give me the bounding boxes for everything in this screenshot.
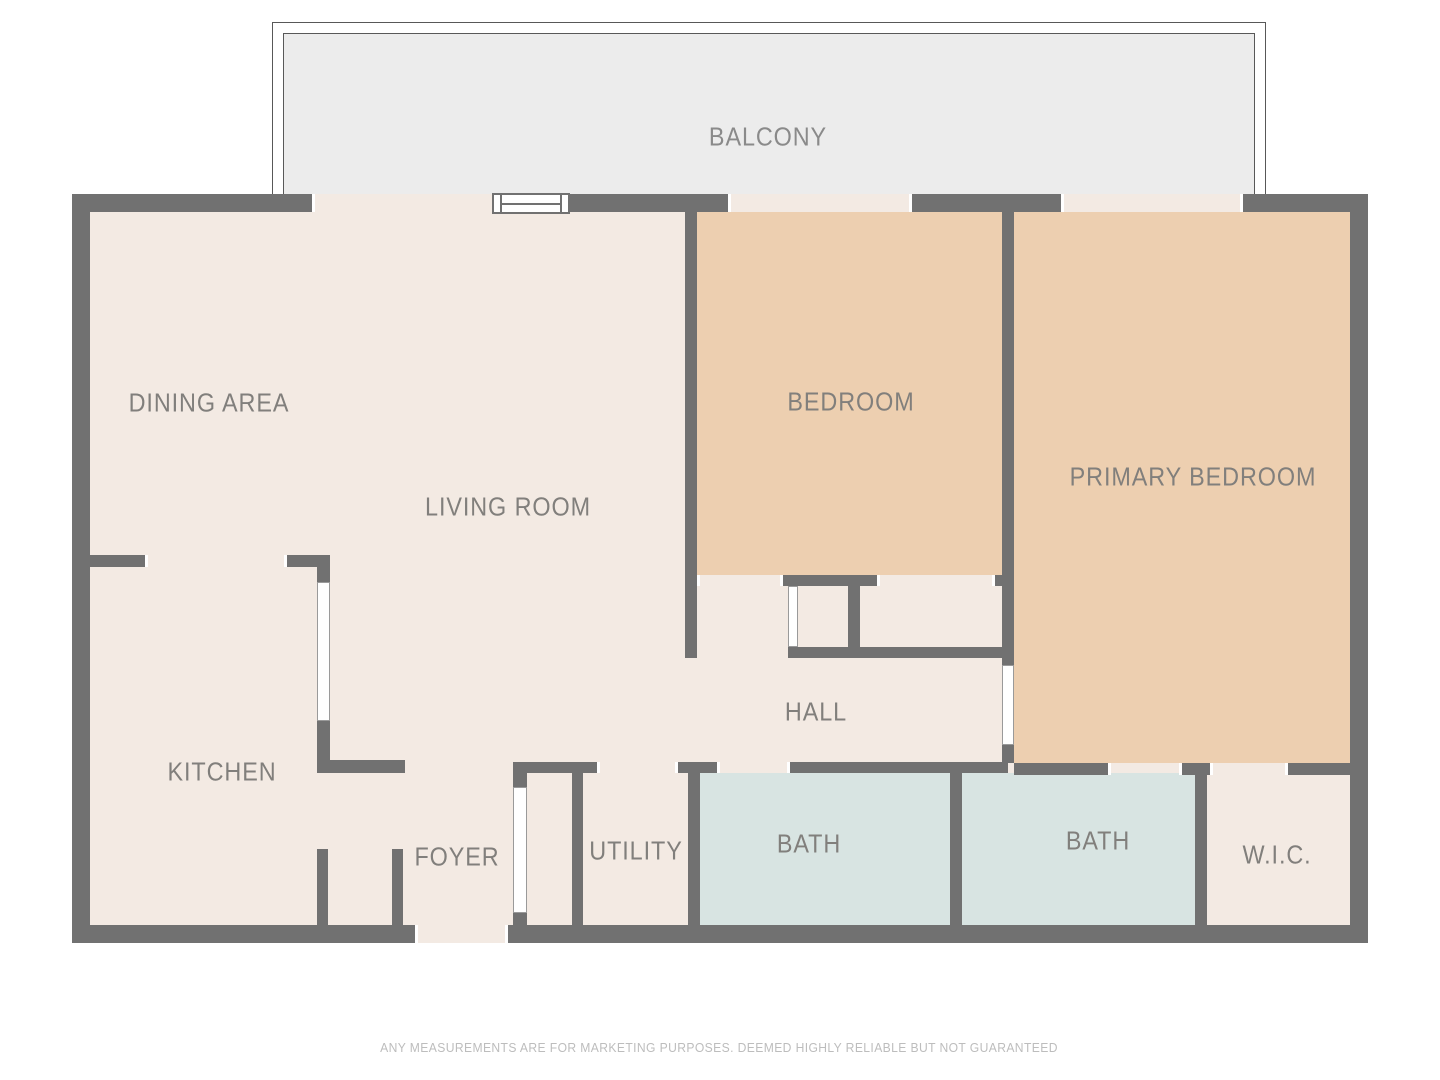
balcony — [283, 33, 1255, 194]
balcony-label: BALCONY — [709, 122, 827, 153]
door-jamb — [909, 194, 912, 212]
door-jamb — [505, 925, 508, 943]
room-label-bath: BATH — [1066, 826, 1130, 857]
door-jamb — [1285, 763, 1288, 775]
wall-foyer-closet-stub-a — [513, 773, 527, 787]
wall-hall-south-c — [790, 762, 1008, 773]
room-label-utility: UTILITY — [589, 836, 682, 867]
door-jamb — [1061, 194, 1064, 212]
wall-foyer-stub-right — [392, 849, 403, 925]
wall-living-bedroom-divider — [685, 212, 697, 658]
door-jamb — [728, 194, 731, 212]
room-label-hall: HALL — [785, 697, 847, 728]
wall-foyer-utility-divider — [572, 762, 583, 925]
door-jamb — [1179, 763, 1182, 775]
wall-closet-south — [788, 647, 1014, 658]
wall-kitchen-arm — [317, 760, 405, 773]
wall-bedrooms-divider-b — [1002, 745, 1014, 763]
room-label-living-room: LIVING ROOM — [425, 492, 591, 523]
door-jamb — [145, 555, 148, 567]
room-label-bath: BATH — [777, 829, 841, 860]
disclaimer-text: ANY MEASUREMENTS ARE FOR MARKETING PURPO… — [380, 1041, 1058, 1055]
opening-entry-door — [415, 925, 508, 943]
door-jamb — [1108, 763, 1111, 775]
slider-track-line — [502, 203, 560, 205]
room-label-foyer: FOYER — [414, 842, 499, 873]
floor-plan-canvas: BALCONY DINING AREALIVING ROOMBEDROOMPRI… — [0, 0, 1440, 1080]
door-jamb — [780, 575, 783, 586]
slider-frame-line — [560, 195, 562, 212]
door-jamb — [787, 762, 790, 773]
wall-exterior-top-a — [72, 194, 312, 212]
opening-window-left — [312, 194, 492, 212]
opening-window-middle — [728, 194, 912, 212]
wall-exterior-right — [1350, 194, 1368, 943]
wall-exterior-bottom-b — [508, 925, 1368, 943]
wall-kitchen-east-a — [317, 555, 330, 582]
wall-bath-wic-divider — [1195, 763, 1207, 925]
wall-exterior-left — [72, 194, 90, 943]
room-label-w-i-c: W.I.C. — [1242, 840, 1311, 871]
room-label-dining-area: DINING AREA — [129, 388, 290, 419]
wall-hall-south-a — [513, 762, 597, 773]
foyer-closet-door — [513, 787, 527, 913]
wall-primary-south-c — [1288, 763, 1350, 775]
door-jamb — [717, 762, 720, 773]
door-jamb — [697, 575, 700, 586]
wall-bedrooms-divider-a — [1002, 212, 1014, 665]
room-label-kitchen: KITCHEN — [167, 757, 276, 788]
door-jamb — [1240, 194, 1243, 212]
room-label-bedroom: BEDROOM — [787, 387, 914, 418]
wall-bedroom-south-a — [783, 575, 877, 586]
wall-exterior-bottom-a — [72, 925, 415, 943]
door-jamb — [597, 762, 600, 773]
wall-exterior-top-c — [912, 194, 1061, 212]
door-jamb — [312, 194, 315, 212]
wall-baths-divider — [950, 762, 962, 925]
hall-closet-door — [788, 586, 798, 647]
opening-window-right — [1061, 194, 1243, 212]
sliding-door-symbol — [492, 193, 570, 214]
wall-foyer-closet-stub-b — [513, 913, 527, 925]
wall-foyer-stub-left — [317, 849, 328, 925]
door-jamb — [992, 575, 995, 586]
wall-closet-divider — [848, 575, 860, 658]
room-label-primary-bedroom: PRIMARY BEDROOM — [1070, 462, 1317, 493]
kitchen-pocket-door — [317, 582, 330, 721]
door-jamb — [675, 762, 678, 773]
door-jamb — [877, 575, 880, 586]
door-jamb — [284, 555, 287, 567]
door-jamb — [1210, 763, 1213, 775]
wall-kitchen-north-a — [90, 555, 145, 567]
door-jamb — [415, 925, 418, 943]
primary-bedroom-door — [1002, 665, 1014, 745]
wall-utility-bath-divider — [688, 762, 700, 925]
wall-primary-south-a — [1014, 763, 1108, 775]
wall-exterior-top-b — [569, 194, 728, 212]
